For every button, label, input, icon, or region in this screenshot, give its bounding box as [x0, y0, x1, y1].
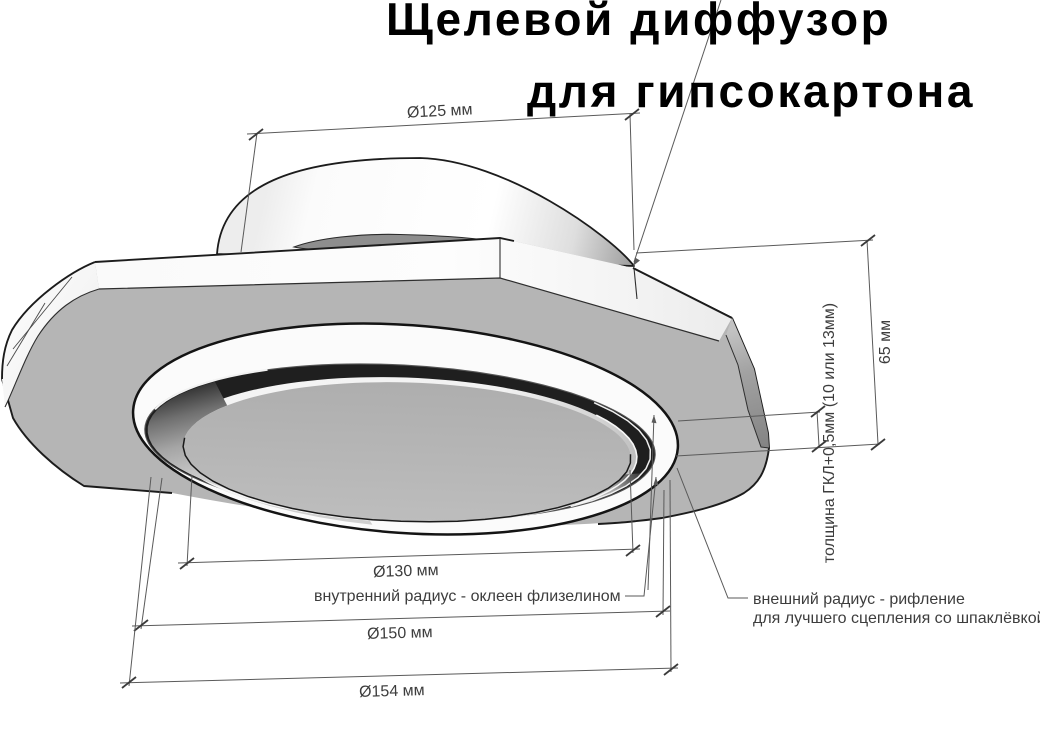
svg-text:для лучшего сцепления со шпакл: для лучшего сцепления со шпаклёвкой — [753, 610, 1040, 627]
svg-text:Ø150 мм: Ø150 мм — [367, 624, 433, 643]
svg-text:толщина ГКЛ+0,5мм (10 или 13мм: толщина ГКЛ+0,5мм (10 или 13мм) — [821, 303, 838, 563]
svg-text:Ø154 мм: Ø154 мм — [359, 682, 425, 701]
svg-text:внешний радиус - рифление: внешний радиус - рифление — [753, 591, 965, 608]
svg-text:Ø130 мм: Ø130 мм — [373, 562, 439, 581]
svg-text:65 мм: 65 мм — [877, 320, 894, 364]
svg-text:Ø125 мм: Ø125 мм — [407, 101, 473, 121]
svg-text:внутренний радиус - оклеен фли: внутренний радиус - оклеен флизелином — [314, 588, 621, 605]
